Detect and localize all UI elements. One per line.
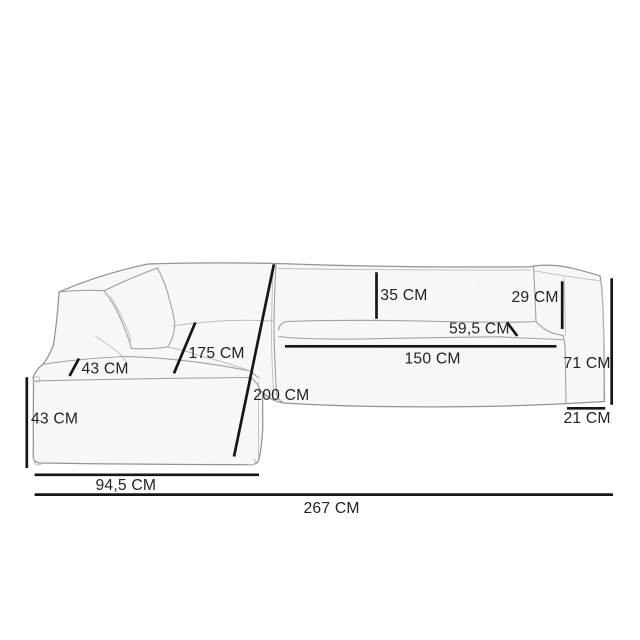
svg-text:59,5 CM: 59,5 CM [449, 320, 510, 337]
svg-text:35 CM: 35 CM [380, 287, 427, 304]
svg-text:43 CM: 43 CM [82, 360, 129, 377]
svg-text:43 CM: 43 CM [31, 410, 78, 427]
svg-text:175 CM: 175 CM [189, 345, 245, 362]
svg-text:71 CM: 71 CM [564, 355, 611, 372]
svg-text:21 CM: 21 CM [564, 410, 611, 427]
svg-text:267 CM: 267 CM [304, 500, 360, 517]
svg-text:150 CM: 150 CM [405, 350, 461, 367]
svg-text:94,5 CM: 94,5 CM [96, 477, 157, 494]
svg-text:29 CM: 29 CM [512, 289, 559, 306]
svg-text:200 CM: 200 CM [253, 387, 309, 404]
